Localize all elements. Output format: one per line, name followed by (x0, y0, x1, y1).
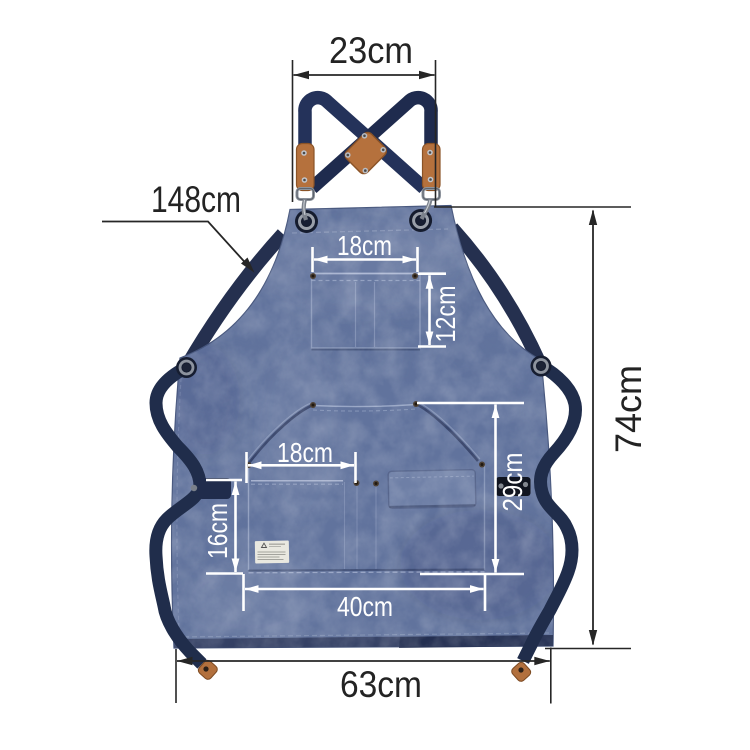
svg-text:23cm: 23cm (329, 30, 413, 71)
svg-text:16cm: 16cm (202, 503, 233, 559)
svg-text:12cm: 12cm (430, 286, 461, 343)
svg-text:148cm: 148cm (151, 179, 241, 220)
svg-text:29cm: 29cm (497, 453, 528, 512)
svg-text:40cm: 40cm (337, 591, 393, 622)
svg-text:18cm: 18cm (277, 437, 333, 468)
svg-text:18cm: 18cm (337, 230, 392, 261)
svg-text:63cm: 63cm (340, 664, 422, 705)
svg-text:74cm: 74cm (608, 365, 649, 453)
